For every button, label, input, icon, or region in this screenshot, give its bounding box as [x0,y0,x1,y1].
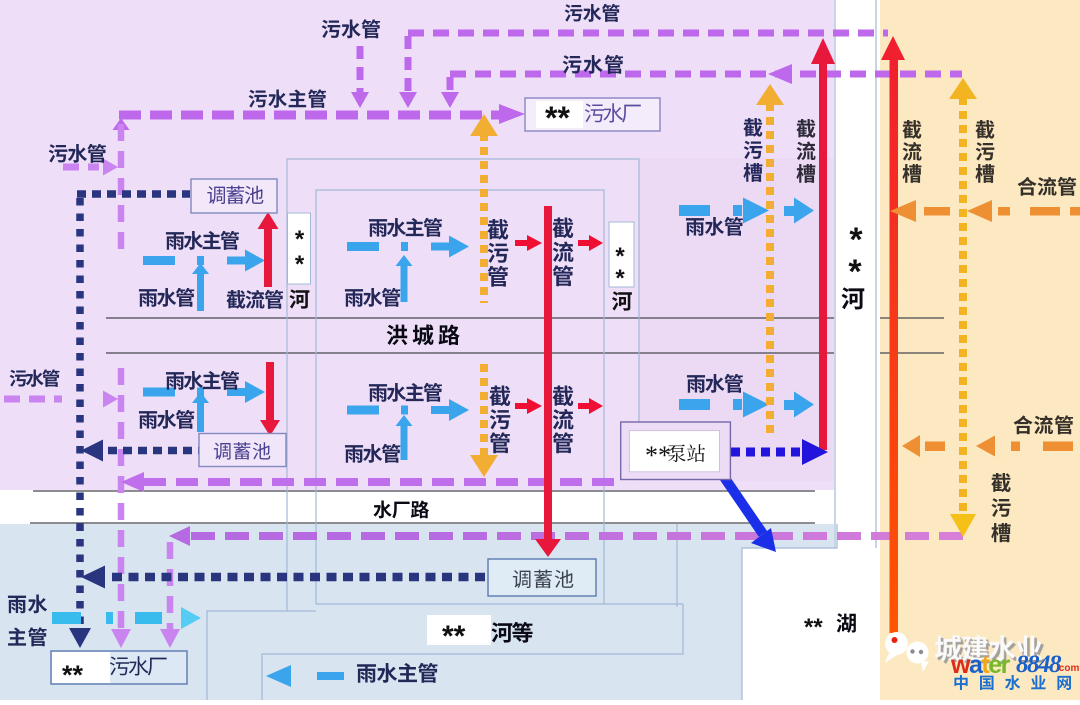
svg-text:**: ** [442,620,466,653]
svg-text:**: ** [545,100,570,136]
svg-text:**: ** [645,441,671,470]
svg-text:*: * [848,253,862,291]
svg-text:*: * [295,226,305,253]
svg-text:**: ** [804,614,823,641]
svg-text:*: * [615,265,625,292]
svg-text:**: ** [62,660,84,690]
svg-text:*: * [295,251,305,278]
svg-text:water: water [950,651,1011,679]
svg-text:.com: .com [1056,663,1079,674]
